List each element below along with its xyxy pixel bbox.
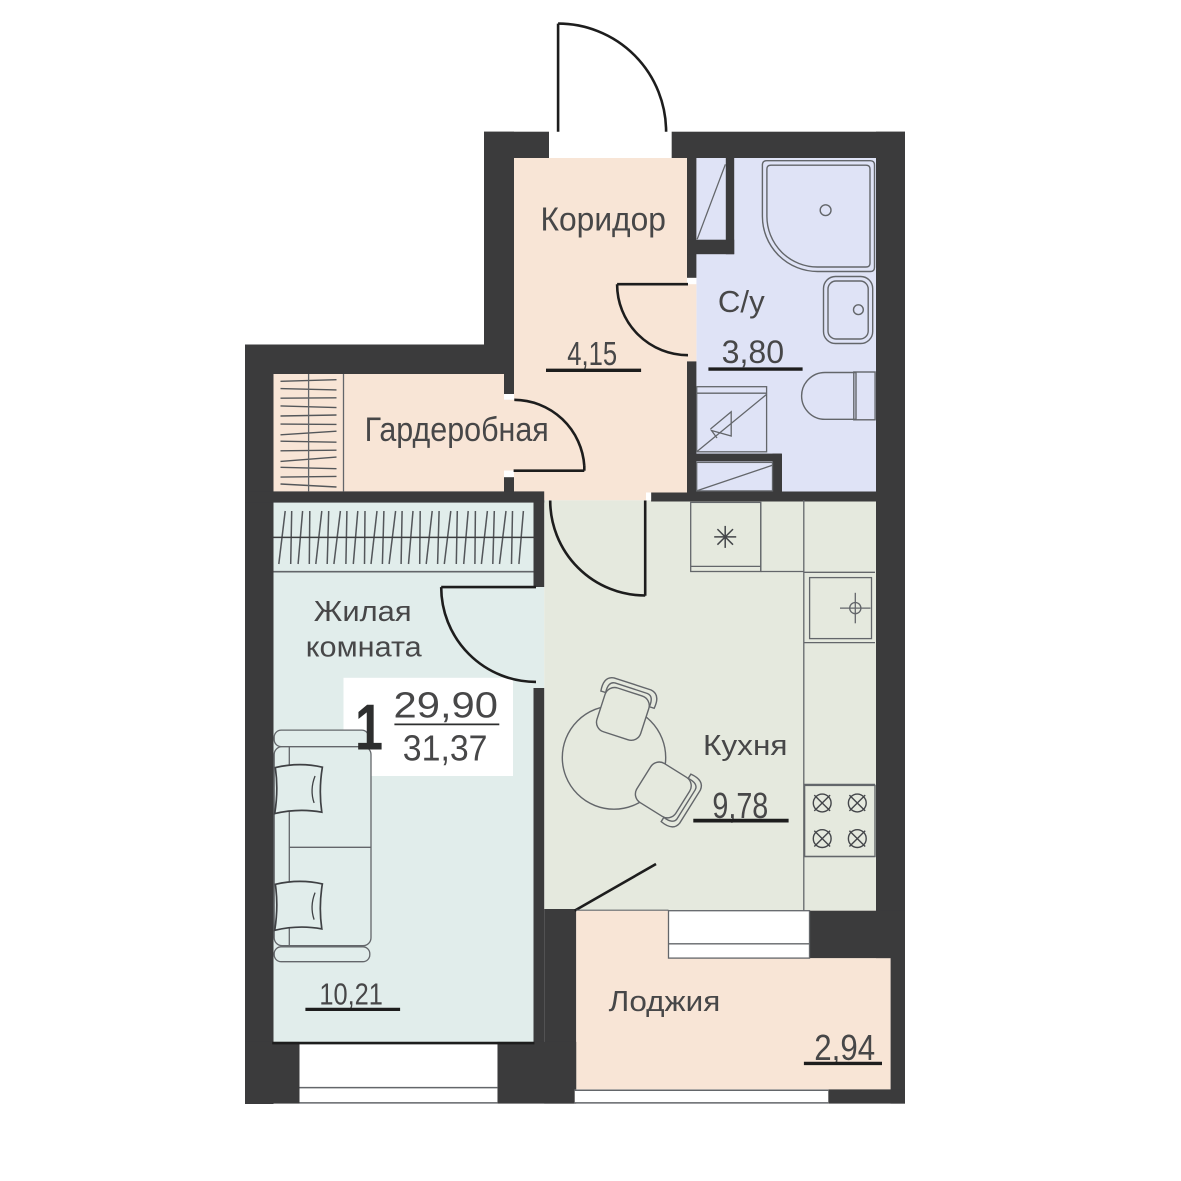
svg-text:Лоджия: Лоджия — [609, 986, 721, 1018]
svg-text:С/у: С/у — [718, 284, 765, 319]
svg-text:29,90: 29,90 — [394, 685, 499, 726]
svg-text:Гардеробная: Гардеробная — [365, 411, 549, 449]
svg-text:31,37: 31,37 — [403, 728, 488, 769]
svg-text:Жилая: Жилая — [314, 596, 412, 628]
svg-text:4,15: 4,15 — [567, 335, 617, 372]
svg-text:3,80: 3,80 — [722, 334, 785, 370]
svg-text:1: 1 — [355, 691, 383, 764]
svg-text:Коридор: Коридор — [541, 201, 666, 238]
svg-text:10,21: 10,21 — [319, 977, 383, 1012]
svg-text:Кухня: Кухня — [703, 730, 788, 762]
svg-text:комната: комната — [306, 631, 423, 663]
